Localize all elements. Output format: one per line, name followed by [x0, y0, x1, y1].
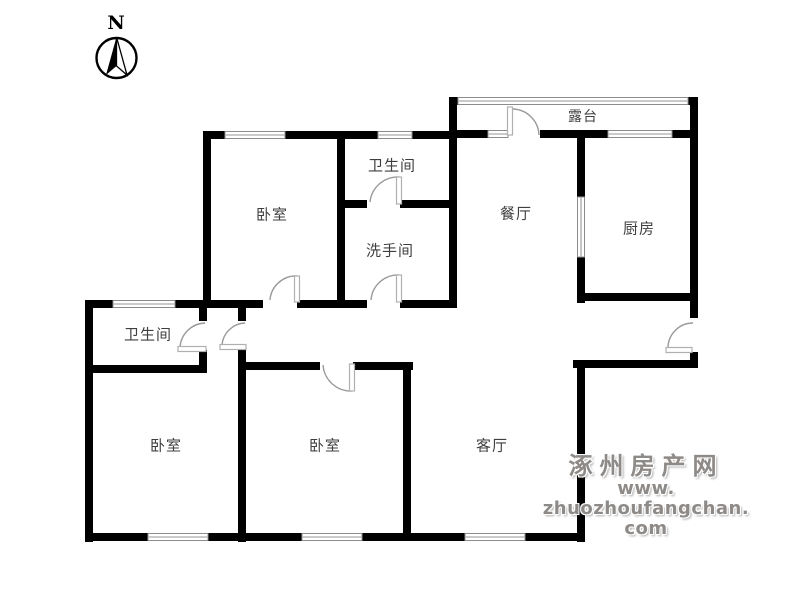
wall — [573, 360, 698, 368]
wall — [577, 293, 698, 301]
window — [302, 534, 362, 541]
window — [608, 131, 672, 138]
wall — [246, 362, 320, 370]
door-washroom — [371, 275, 402, 302]
room-label-dining: 餐厅 — [500, 203, 532, 224]
watermark: 涿州房产网 www. zhuozhoufangchan. com — [518, 453, 774, 539]
watermark-site-url: www. zhuozhoufangchan. com — [518, 479, 774, 538]
door-terrace — [508, 107, 540, 135]
door-bedroom-bottom-left — [220, 323, 246, 350]
compass-north-label: N — [102, 12, 130, 34]
wall — [403, 362, 411, 541]
wall — [238, 308, 246, 321]
room-label-bedroom-bottom-mid: 卧室 — [309, 435, 341, 456]
wall — [337, 131, 345, 308]
window — [488, 131, 508, 138]
window — [113, 301, 175, 308]
wall — [297, 300, 367, 308]
wall — [690, 97, 698, 318]
window — [148, 534, 208, 541]
doors — [178, 107, 693, 391]
window — [578, 197, 585, 257]
wall — [199, 308, 207, 321]
window — [465, 534, 525, 541]
wall — [85, 300, 93, 542]
watermark-site-name: 涿州房产网 — [518, 453, 774, 479]
room-label-bathroom-top: 卫生间 — [368, 155, 416, 176]
floorplan-canvas: N 露台 卫生间 洗手间 餐厅 厨房 卧室 卫生间 卧室 卧室 客厅 涿州房产网… — [0, 0, 800, 600]
window — [458, 98, 688, 105]
room-label-living: 客厅 — [476, 435, 508, 456]
wall — [85, 365, 207, 373]
wall — [203, 131, 211, 308]
room-label-terrace: 露台 — [568, 106, 598, 126]
door-bathroom-left — [178, 323, 206, 352]
room-label-bedroom-top: 卧室 — [256, 204, 288, 225]
door-entry — [666, 323, 693, 353]
door-bathroom-top — [370, 177, 402, 204]
door-bedroom-top — [270, 276, 300, 302]
room-label-bathroom-left: 卫生间 — [124, 324, 172, 345]
door-bedroom-bottom-mid — [323, 364, 355, 391]
wall — [238, 348, 246, 542]
room-label-kitchen: 厨房 — [623, 218, 655, 239]
room-label-bedroom-bottom-left: 卧室 — [150, 435, 182, 456]
window — [225, 132, 285, 139]
wall — [449, 97, 457, 308]
wall — [345, 200, 367, 208]
window — [378, 132, 412, 139]
compass-icon — [94, 35, 140, 81]
wall — [400, 300, 457, 308]
room-label-washroom: 洗手间 — [366, 240, 414, 261]
wall — [400, 200, 449, 208]
